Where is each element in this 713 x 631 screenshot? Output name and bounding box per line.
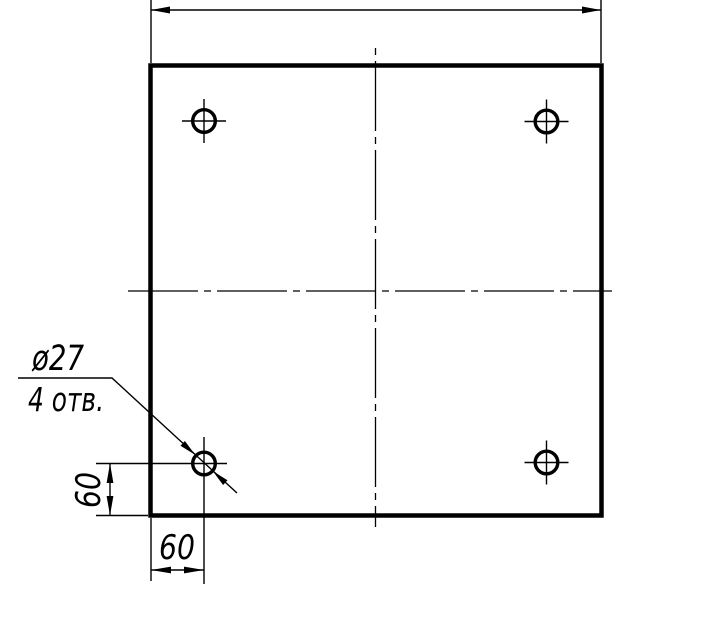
holes [96,99,569,584]
plate-engineering-drawing: 60 60 ø27 4 отв. [0,0,713,631]
hole-count-label: 4 отв. [28,380,104,419]
drawing-canvas: 60 60 ø27 4 отв. [0,0,713,631]
hole-diameter-label: ø27 [31,339,84,379]
arrowhead-left [151,7,170,14]
arrowhead-right [582,7,601,14]
vertical-dim-label: 60 [69,472,109,508]
vertical-offset-dimension: 60 [69,464,148,516]
horizontal-offset-dimension: 60 [151,518,204,581]
horizontal-dim-label: 60 [159,528,195,568]
